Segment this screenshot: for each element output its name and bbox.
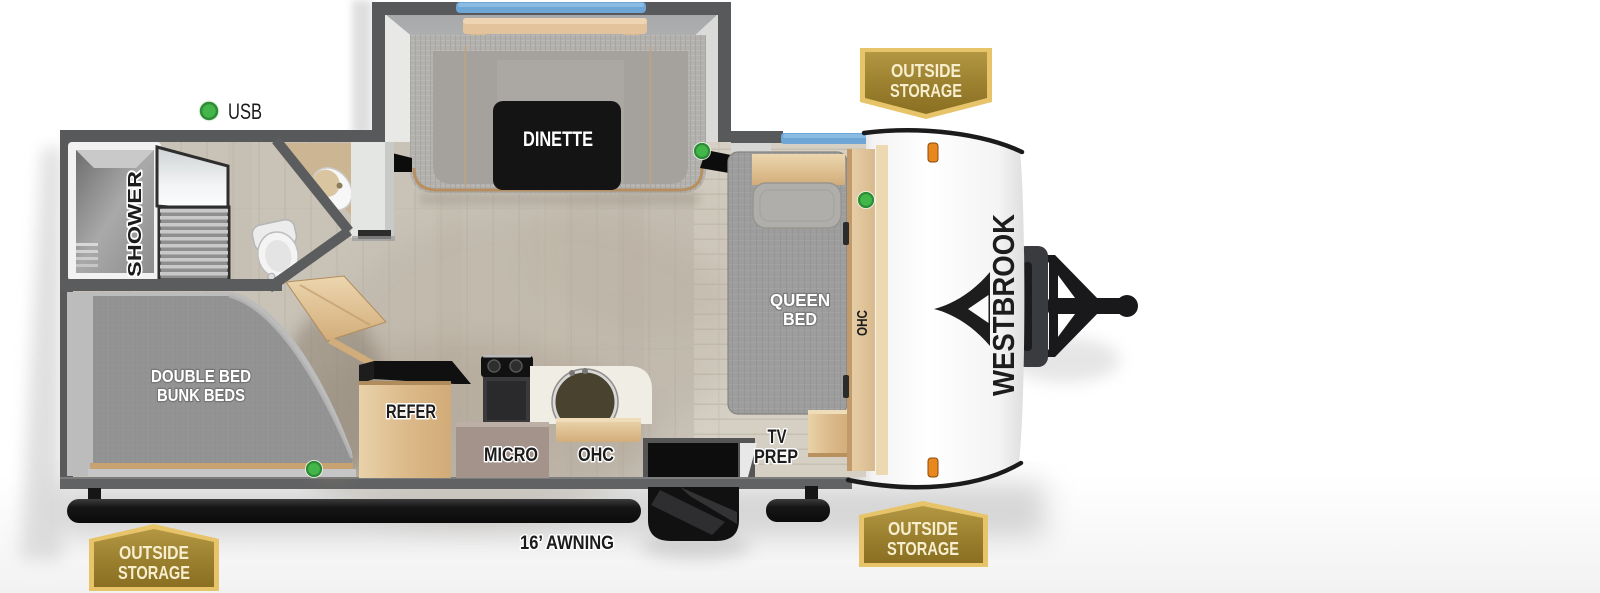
svg-text:REFER: REFER: [386, 402, 436, 423]
svg-text:16’ AWNING: 16’ AWNING: [520, 533, 614, 554]
svg-text:WESTBROOK: WESTBROOK: [986, 213, 1021, 396]
svg-text:BED: BED: [783, 309, 817, 329]
svg-text:OUTSIDE: OUTSIDE: [119, 543, 189, 563]
svg-text:SHOWER: SHOWER: [125, 171, 145, 277]
svg-text:DOUBLE BED: DOUBLE BED: [151, 366, 251, 386]
svg-text:BUNK BEDS: BUNK BEDS: [157, 385, 245, 405]
svg-text:QUEEN: QUEEN: [770, 290, 830, 310]
svg-text:OHC: OHC: [854, 310, 871, 336]
svg-text:PREP: PREP: [754, 447, 798, 468]
svg-text:MICRO: MICRO: [484, 445, 538, 466]
svg-text:DINETTE: DINETTE: [523, 128, 593, 151]
svg-text:TV: TV: [768, 427, 787, 448]
svg-text:OUTSIDE: OUTSIDE: [888, 519, 958, 539]
svg-text:STORAGE: STORAGE: [890, 81, 962, 101]
svg-text:OHC: OHC: [578, 445, 614, 466]
svg-text:STORAGE: STORAGE: [887, 539, 959, 559]
svg-text:OUTSIDE: OUTSIDE: [891, 61, 961, 81]
svg-text:STORAGE: STORAGE: [118, 563, 190, 583]
svg-text:USB: USB: [228, 99, 262, 124]
